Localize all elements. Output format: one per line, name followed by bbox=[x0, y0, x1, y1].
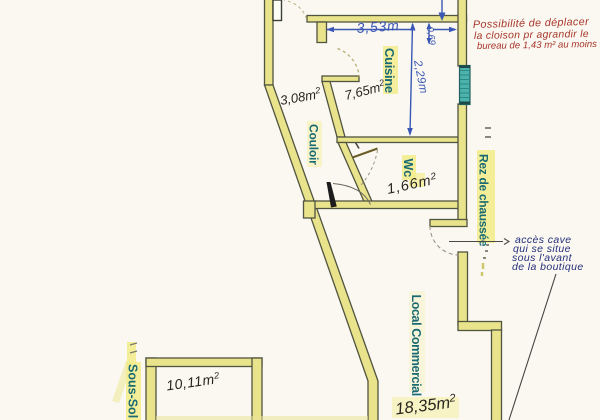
svg-text:Rez de chaussée: Rez de chaussée bbox=[477, 154, 491, 247]
svg-text:Sous-Sol: Sous-Sol bbox=[126, 364, 140, 418]
svg-text:0,69: 0,69 bbox=[424, 26, 437, 46]
svg-text:Local Commercial: Local Commercial bbox=[409, 295, 423, 396]
svg-text:de la boutique: de la boutique bbox=[512, 261, 584, 273]
svg-text:3,53m: 3,53m bbox=[356, 17, 400, 36]
svg-text:Wc: Wc bbox=[401, 159, 415, 178]
svg-text:Couloir: Couloir bbox=[307, 124, 321, 165]
svg-text:bureau de 1,43 m² au moins: bureau de 1,43 m² au moins bbox=[477, 39, 597, 52]
